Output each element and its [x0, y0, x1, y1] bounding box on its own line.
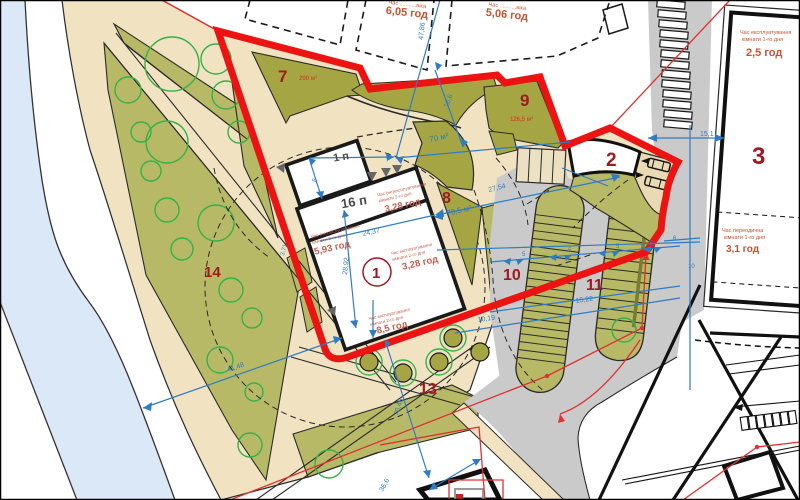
svg-text:2,5 год: 2,5 год [746, 47, 782, 59]
svg-text:14: 14 [204, 264, 221, 281]
svg-text:13: 13 [419, 381, 437, 398]
svg-text:10: 10 [503, 267, 521, 284]
svg-text:Час переодична: Час переодична [722, 228, 764, 234]
svg-text:11: 11 [586, 277, 603, 294]
svg-text:кімнати 1-го дня: кімнати 1-го дня [742, 37, 783, 43]
svg-text:8: 8 [442, 190, 451, 207]
svg-text:1: 1 [372, 265, 380, 282]
svg-text:15,1: 15,1 [700, 131, 714, 138]
svg-text:9: 9 [520, 91, 529, 110]
svg-text:кімнати 1-го дня: кімнати 1-го дня [724, 235, 765, 241]
svg-text:2: 2 [606, 150, 617, 171]
svg-text:3,1 год: 3,1 год [726, 244, 760, 255]
svg-text:126,5 м²: 126,5 м² [510, 116, 533, 123]
svg-text:200 м²: 200 м² [299, 75, 317, 82]
svg-text:Час експлуатування: Час експлуатування [740, 30, 791, 36]
svg-text:10: 10 [688, 264, 695, 270]
svg-text:3: 3 [752, 143, 765, 170]
svg-text:7: 7 [278, 67, 287, 86]
